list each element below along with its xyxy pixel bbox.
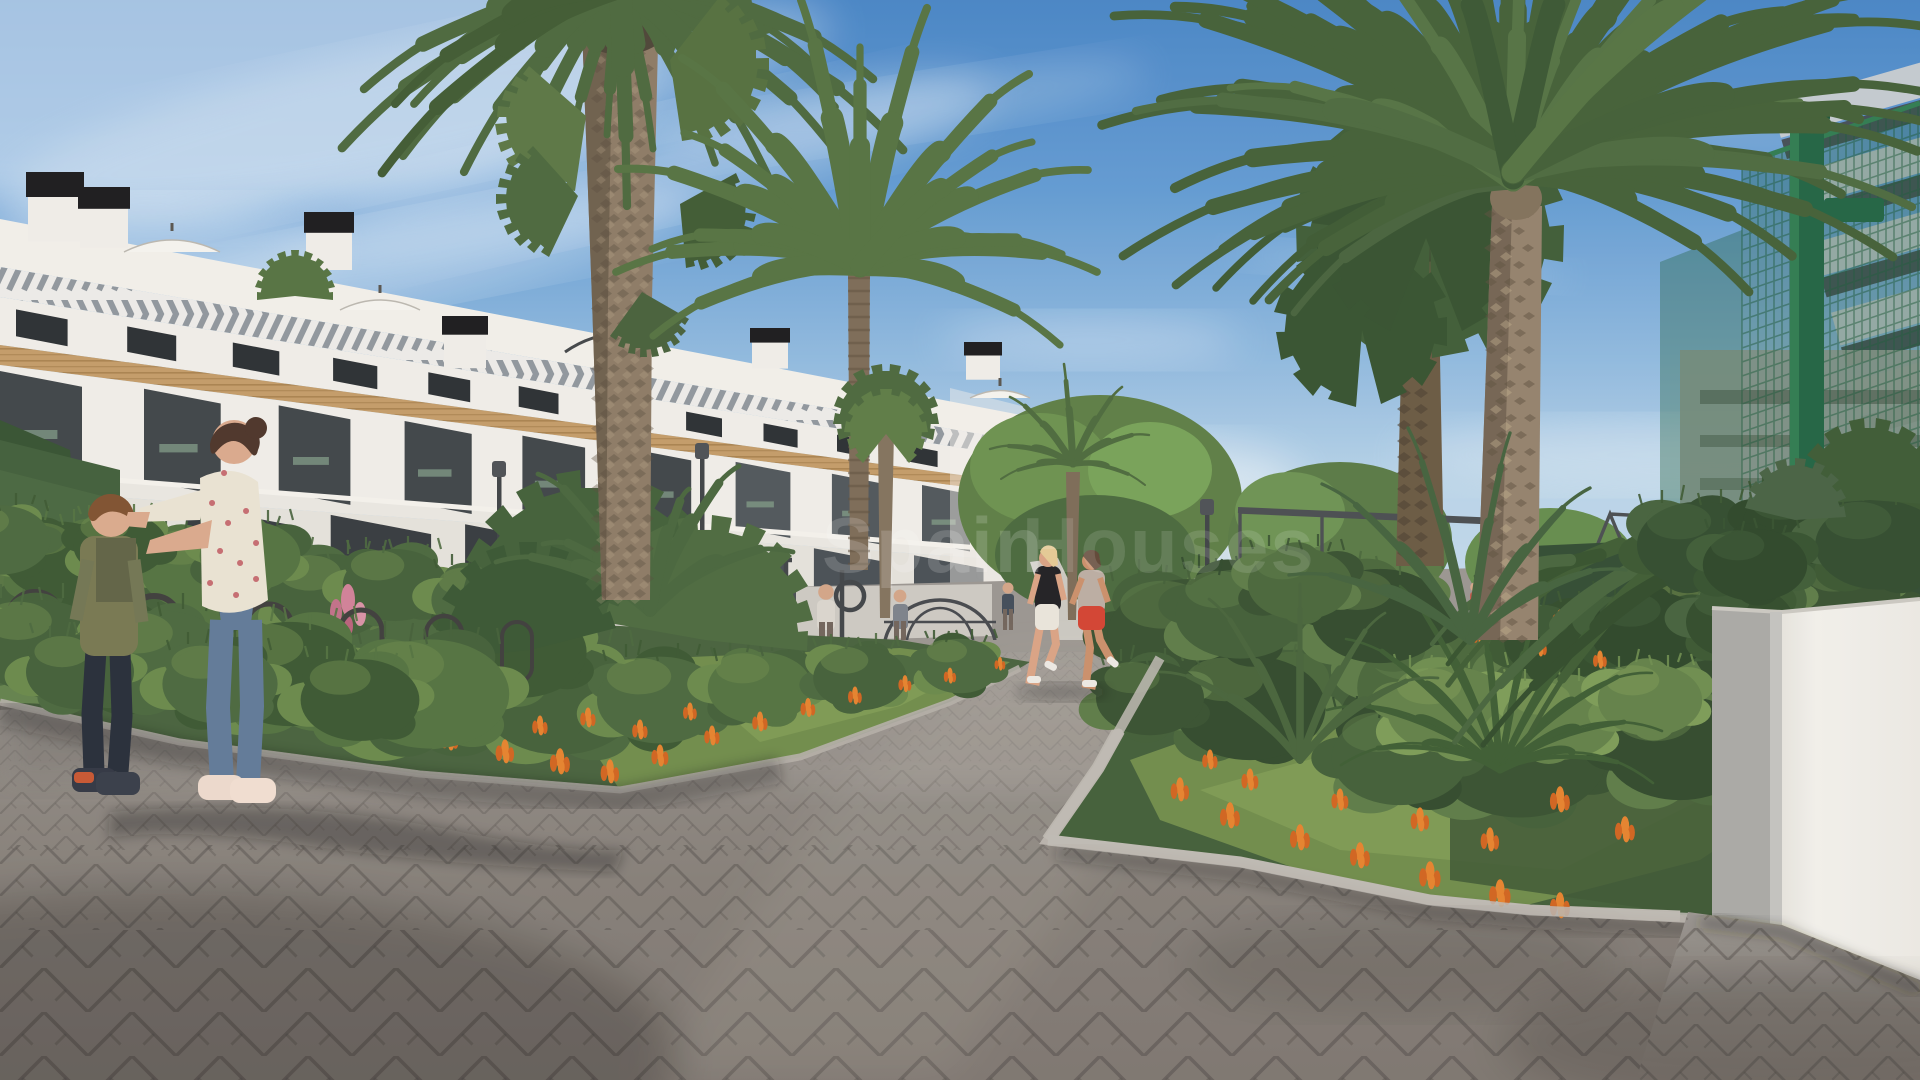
svg-text:Spain: Spain [822, 501, 1044, 589]
svg-text:Houses: Houses [1022, 501, 1316, 589]
